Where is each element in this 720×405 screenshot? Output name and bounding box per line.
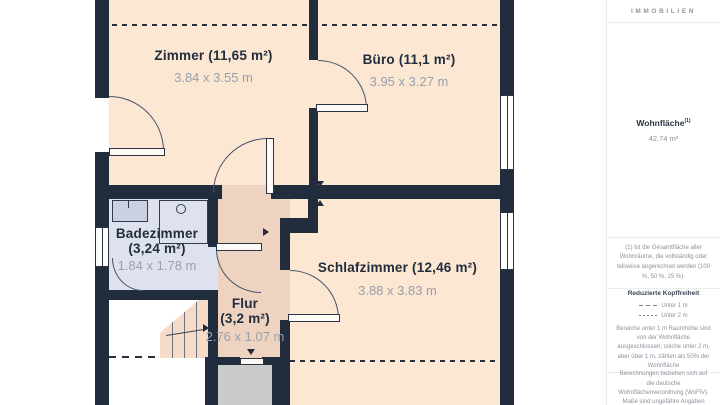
room-dims-badezimmer: 1.84 x 1.78 m (99, 258, 215, 274)
room-label-badezimmer: Badezimmer (99, 226, 215, 242)
room-area-flur: (3,2 m²) (205, 311, 285, 327)
stairwell-floor (218, 365, 272, 405)
legend-item-under-2m: Unter 2 m (639, 313, 687, 319)
door-leaf (216, 243, 262, 251)
stair-tread (172, 292, 173, 358)
sink-tap (128, 200, 129, 208)
legend-item-label: Unter 1 m (661, 303, 687, 309)
marker-arrow (316, 181, 324, 187)
room-label-flur: Flur (205, 296, 285, 312)
wall (95, 0, 109, 98)
headroom-line-under2m (290, 360, 500, 362)
footnote-section: (1) Ist die Gesamtfläche aller Wohnräume… (607, 238, 720, 289)
living-area-label: Wohnfläche(1) (636, 118, 690, 128)
sink-fixture (112, 200, 148, 222)
wall (280, 233, 290, 270)
room-label-schlafzimmer: Schlafzimmer (12,46 m²) (290, 260, 505, 276)
wall (500, 168, 514, 212)
disclaimer-section: Berechnungen beziehen sich auf die deuts… (607, 373, 720, 405)
window (500, 95, 514, 170)
stair-tread (184, 292, 185, 358)
room-zimmer-floor (109, 0, 318, 185)
brand-wordmark: IMMOBILIEN (607, 0, 720, 23)
dash-sample-under-2m (639, 315, 657, 316)
wall (271, 185, 514, 199)
shower-drain (176, 204, 186, 214)
door-leaf (316, 104, 368, 112)
dash-sample-under-1m (639, 305, 657, 306)
marker-arrow (247, 349, 255, 355)
legend-title: Reduzierte Kopffreiheit (628, 290, 700, 297)
stair-tread (196, 292, 197, 358)
wall (95, 265, 109, 405)
marker-arrow (316, 200, 324, 206)
headroom-legend-section: Reduzierte Kopffreiheit Unter 1 m Unter … (607, 289, 720, 373)
living-area-section: Wohnfläche(1) 42.74 m² (607, 23, 720, 238)
room-label-buero: Büro (11,1 m²) (318, 52, 500, 68)
wall (95, 290, 218, 300)
living-area-footnote-marker: (1) (684, 118, 690, 124)
door-leaf (288, 314, 340, 322)
legend-note: Bereiche unter 1 m Raumhöhe sind von der… (615, 325, 712, 371)
marker-arrow (263, 228, 269, 236)
wall (95, 185, 222, 199)
room-dims-schlafzimmer: 3.88 x 3.83 m (290, 283, 505, 299)
room-dims-zimmer: 3.84 x 3.55 m (109, 70, 318, 86)
door-leaf (266, 138, 274, 194)
room-dims-flur: 2.76 x 1.07 m (185, 329, 305, 345)
floorplan-canvas: Zimmer (11,65 m²) 3.84 x 3.55 m Büro (11… (0, 0, 607, 405)
wall (205, 357, 218, 405)
wall (272, 357, 290, 405)
room-dims-buero: 3.95 x 3.27 m (318, 74, 500, 90)
threshold (240, 358, 264, 365)
legend-item-label: Unter 2 m (661, 313, 687, 319)
living-area-value: 42.74 m² (649, 134, 679, 143)
living-area-label-text: Wohnfläche (636, 118, 684, 128)
door-leaf (109, 148, 165, 156)
staircase (160, 292, 208, 358)
room-area-badezimmer: (3,24 m²) (99, 241, 215, 257)
info-sidebar: IMMOBILIEN Wohnfläche(1) 42.74 m² (1) Is… (606, 0, 720, 405)
room-label-zimmer: Zimmer (11,65 m²) (109, 48, 318, 64)
wall (500, 0, 514, 95)
headroom-line-under2m (112, 24, 500, 26)
floorplan-page: Zimmer (11,65 m²) 3.84 x 3.55 m Büro (11… (0, 0, 720, 405)
wall (280, 218, 318, 233)
legend-item-under-1m: Unter 1 m (639, 303, 687, 309)
